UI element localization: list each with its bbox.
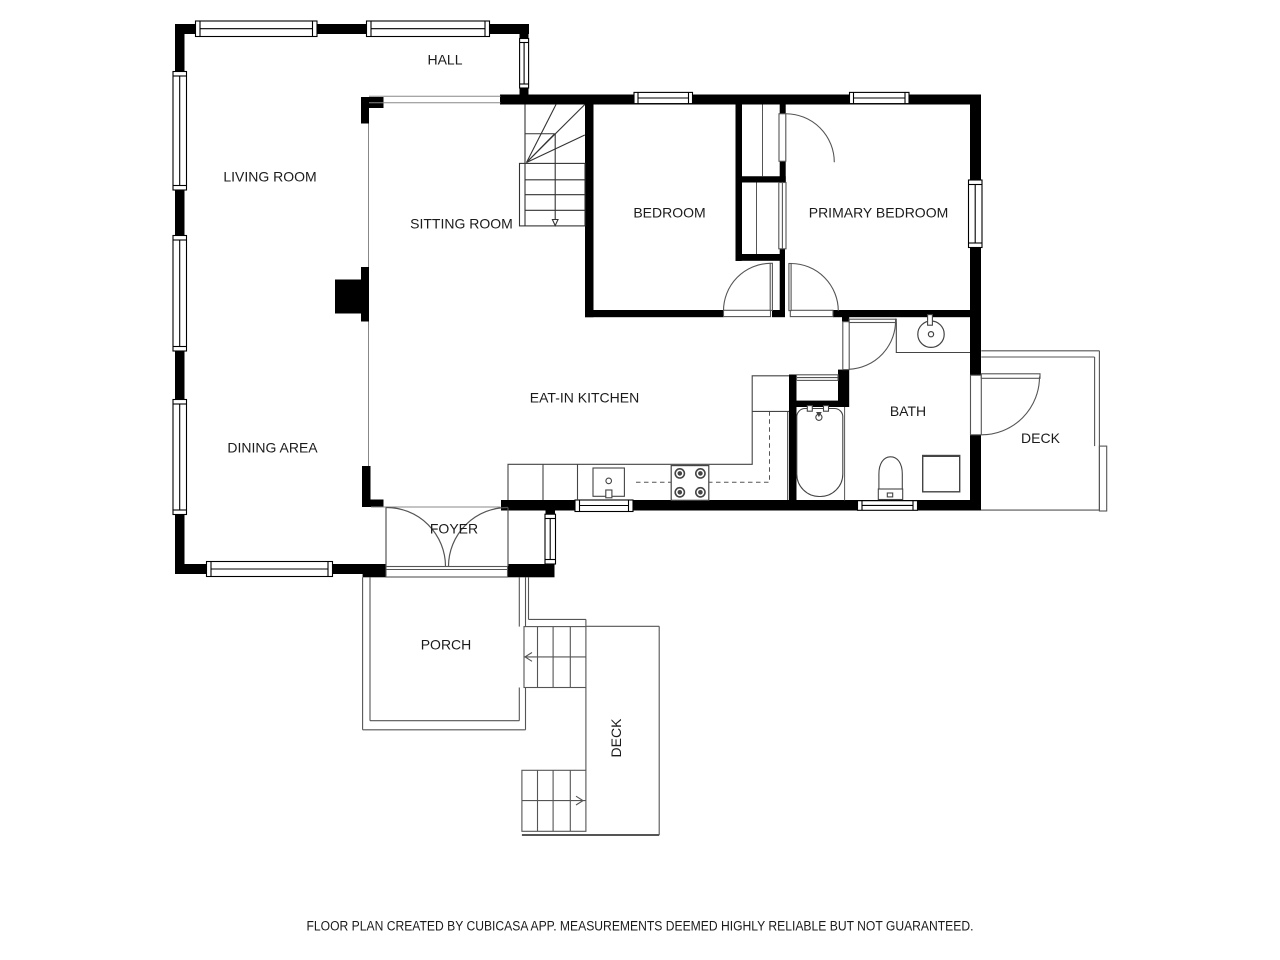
svg-text:BATH: BATH: [890, 403, 926, 419]
svg-text:DECK: DECK: [608, 718, 624, 758]
svg-text:FLOOR PLAN CREATED BY CUBICASA: FLOOR PLAN CREATED BY CUBICASA APP. MEAS…: [307, 919, 974, 934]
svg-text:EAT-IN KITCHEN: EAT-IN KITCHEN: [530, 389, 639, 405]
svg-text:DINING AREA: DINING AREA: [227, 439, 318, 455]
svg-text:FOYER: FOYER: [430, 520, 478, 536]
svg-text:DECK: DECK: [1021, 430, 1061, 446]
svg-text:HALL: HALL: [427, 52, 462, 68]
svg-text:PRIMARY BEDROOM: PRIMARY BEDROOM: [809, 204, 949, 220]
svg-text:PORCH: PORCH: [421, 636, 472, 652]
svg-text:BEDROOM: BEDROOM: [633, 204, 705, 220]
svg-text:SITTING ROOM: SITTING ROOM: [410, 215, 513, 231]
svg-text:LIVING ROOM: LIVING ROOM: [223, 168, 316, 184]
